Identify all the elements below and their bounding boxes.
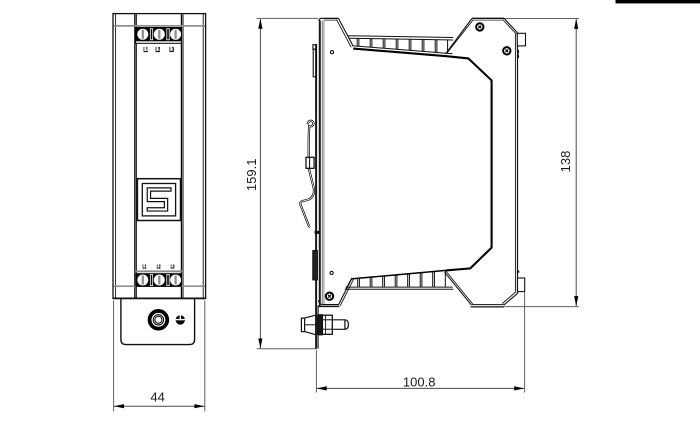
- svg-text:L3: L3: [169, 47, 174, 54]
- svg-text:L1: L1: [143, 47, 148, 54]
- svg-text:159.1: 159.1: [244, 159, 259, 192]
- svg-text:L3: L3: [171, 265, 175, 271]
- svg-text:L2: L2: [155, 47, 160, 54]
- svg-text:138: 138: [558, 151, 573, 173]
- svg-text:44: 44: [150, 390, 164, 405]
- svg-text:L1: L1: [142, 265, 146, 271]
- svg-text:L2: L2: [157, 265, 161, 271]
- svg-text:100.8: 100.8: [403, 374, 436, 389]
